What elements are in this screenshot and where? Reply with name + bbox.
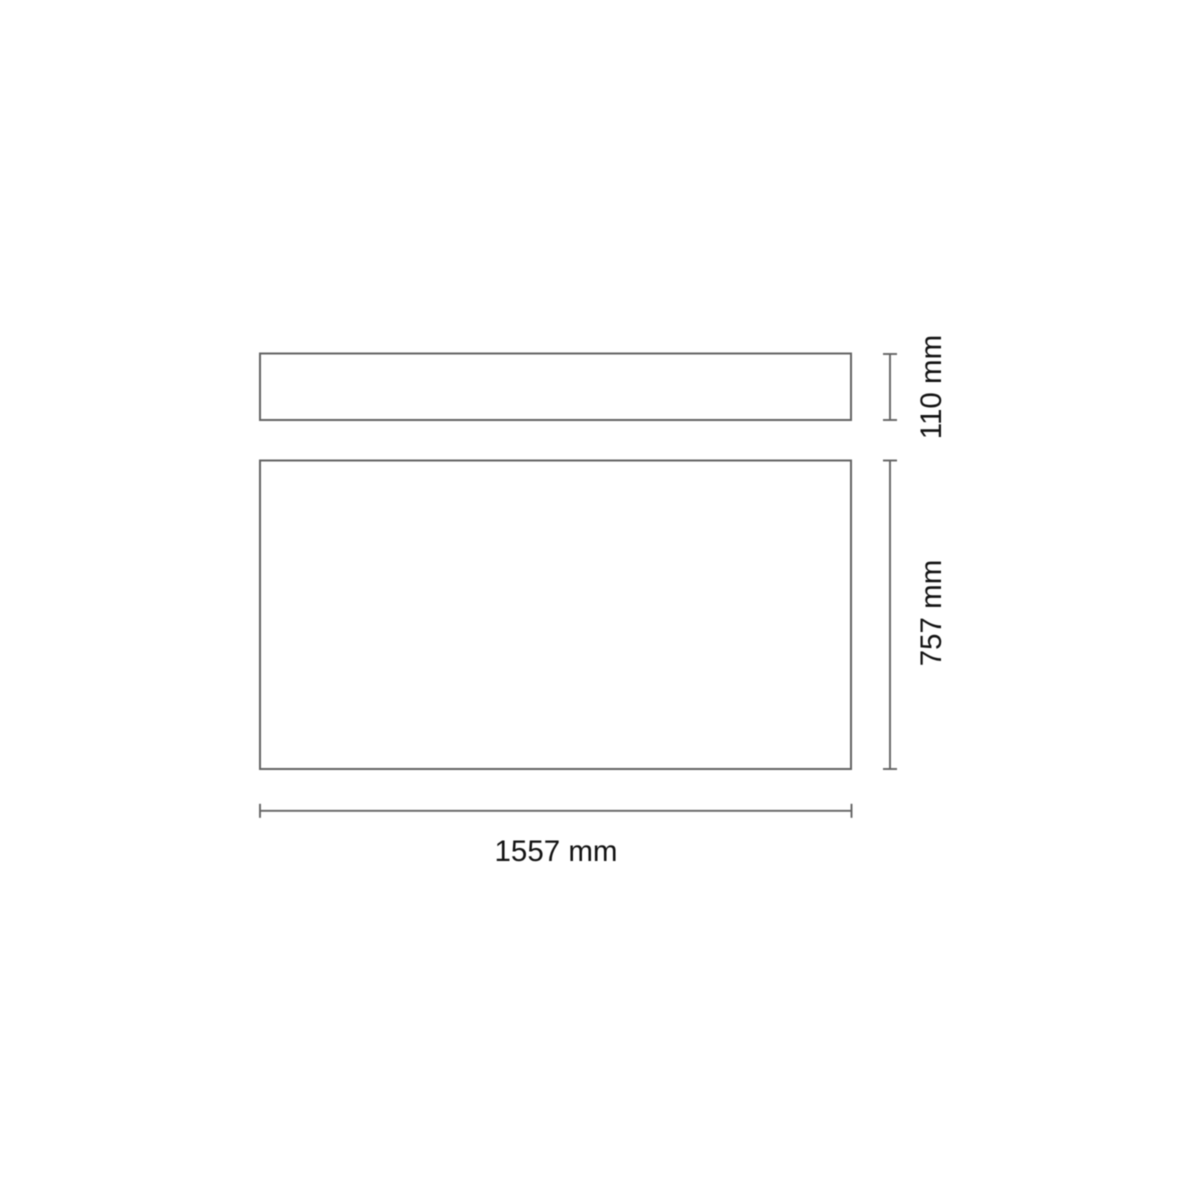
svg-text:1557 mm: 1557 mm: [495, 835, 618, 868]
svg-text:757 mm: 757 mm: [915, 560, 948, 667]
svg-text:110 mm: 110 mm: [915, 335, 948, 439]
